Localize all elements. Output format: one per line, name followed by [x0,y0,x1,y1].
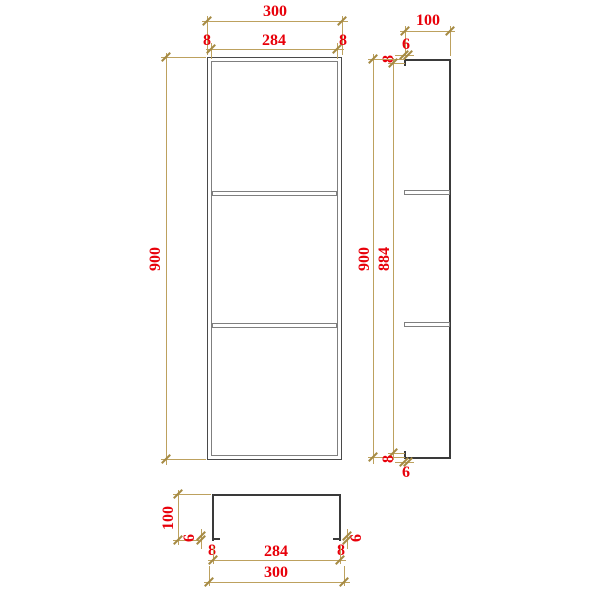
dim-label-top-lip-left: 6 [182,531,198,545]
side-view-shelf-2 [404,322,450,327]
extension-line [340,546,341,564]
top-view-front-face [212,494,341,496]
dimension-line [206,49,344,50]
front-view-shelf-2 [212,323,337,328]
dimension-line [204,582,350,583]
dim-label-front-overall-width: 300 [255,4,295,20]
side-view-back-wall [449,59,451,459]
dim-label-side-lip-top: 6 [400,37,412,53]
dim-label-top-lip-right: 6 [349,531,365,545]
front-view-inner-frame [211,61,338,456]
dimension-line [373,54,374,464]
dim-label-side-height: 900 [357,239,373,279]
dim-label-side-inner-height: 884 [377,239,393,279]
dim-label-front-height: 900 [148,239,164,279]
top-view-back-lip-left [212,538,220,540]
dim-label-front-wall-left: 8 [200,33,214,49]
dim-label-front-wall-right: 8 [336,33,350,49]
front-view-shelf-1 [212,191,337,196]
dim-label-front-inner-width: 284 [254,33,294,49]
extension-line [161,459,206,460]
dimension-line [393,58,394,460]
top-view-left-wall [212,494,214,541]
technical-drawing-canvas: 300 284 8 8 900 100 [0,0,600,600]
dimension-line [202,21,348,22]
dim-label-top-overall-width: 300 [256,565,296,581]
side-view-top-wall [404,59,451,61]
dimension-line [166,53,167,465]
top-view-back-lip-right [333,538,341,540]
extension-line [161,57,206,58]
dim-label-side-wall-bottom: 8 [381,452,397,466]
dimension-line [208,560,346,561]
dim-label-side-lip-bottom: 6 [400,465,412,481]
dim-label-top-inner-width: 284 [256,544,296,560]
dim-label-top-depth: 100 [161,498,177,538]
extension-line [213,546,214,564]
side-view-shelf-1 [404,190,450,195]
dim-label-side-depth: 100 [408,13,448,29]
top-view-right-wall [339,494,341,541]
